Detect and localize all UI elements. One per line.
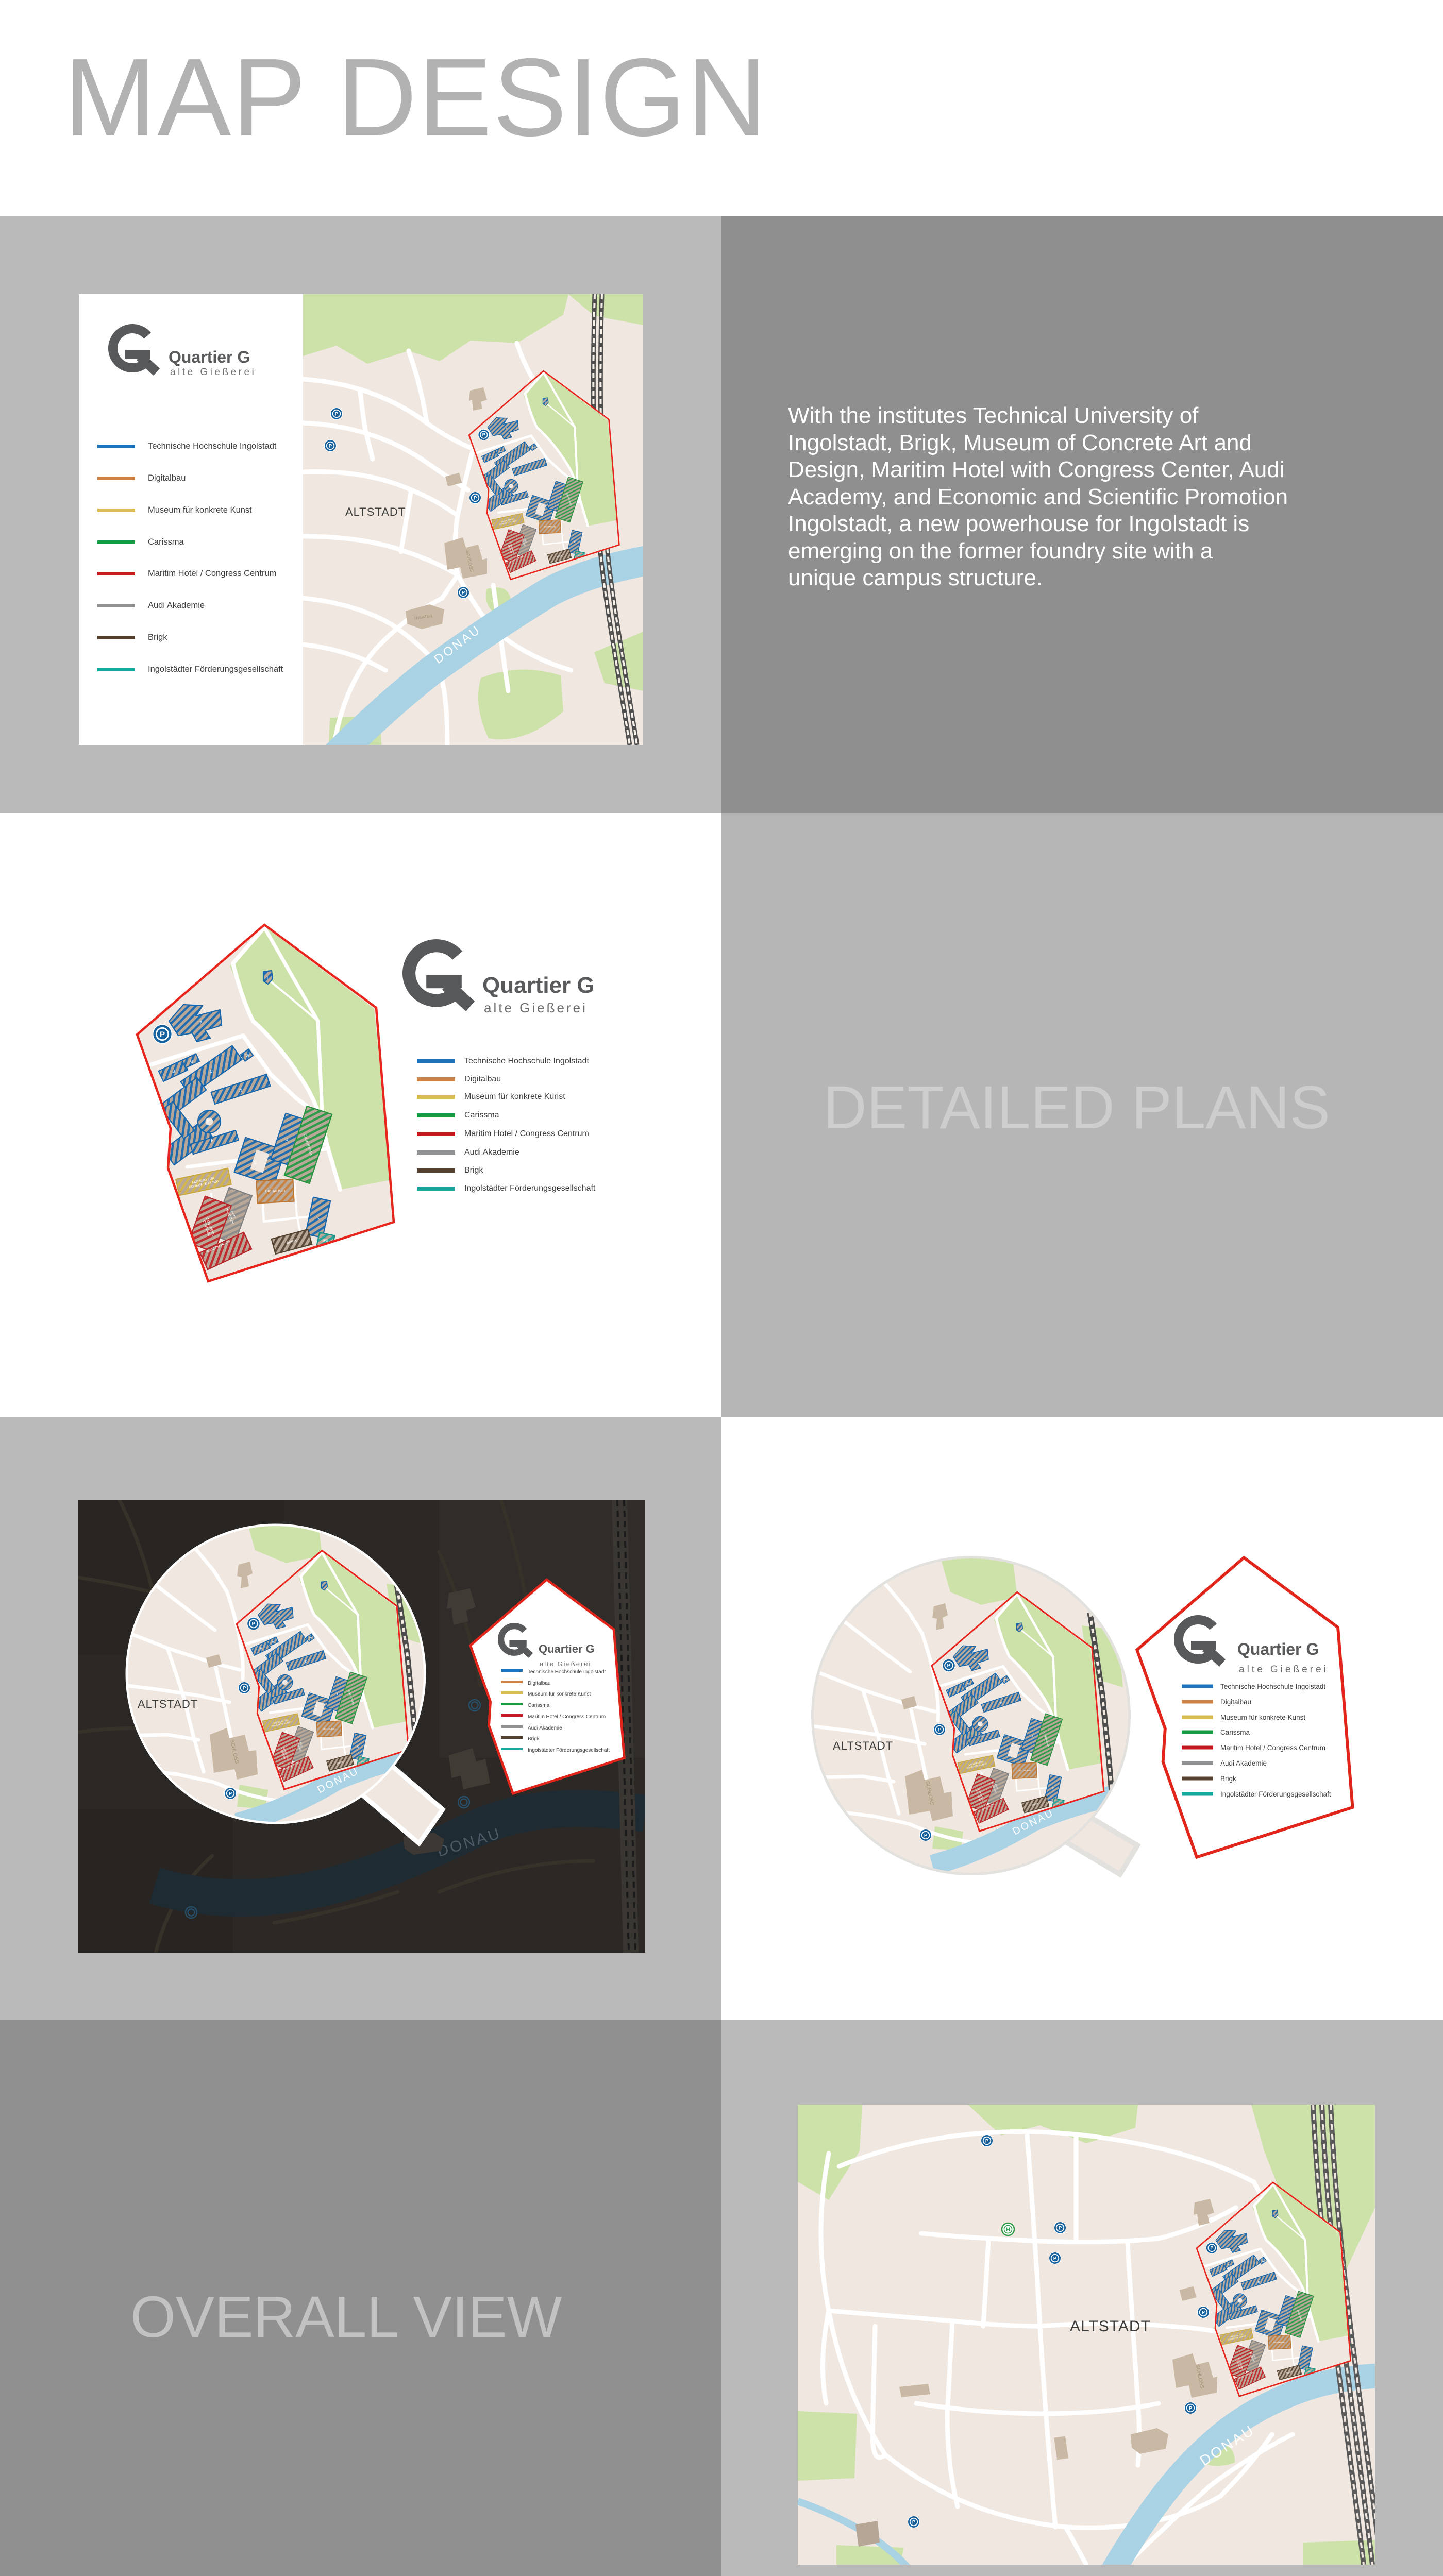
svg-text:ALTSTADT: ALTSTADT: [1070, 2318, 1151, 2335]
svg-text:ALTSTADT: ALTSTADT: [345, 505, 406, 518]
svg-text:Museum für konkrete Kunst: Museum für konkrete Kunst: [1220, 1714, 1305, 1721]
svg-text:Maritim Hotel / Congress Centr: Maritim Hotel / Congress Centrum: [528, 1714, 606, 1720]
svg-text:Ingolstädter Förderungsgesells: Ingolstädter Förderungsgesellschaft: [1220, 1790, 1331, 1798]
svg-text:alte Gießerei: alte Gießerei: [1239, 1664, 1329, 1675]
svg-text:Carissma: Carissma: [1220, 1728, 1250, 1736]
svg-text:Quartier G: Quartier G: [1237, 1640, 1319, 1658]
svg-text:Museum für konkrete Kunst: Museum für konkrete Kunst: [528, 1691, 591, 1697]
svg-text:H: H: [1006, 2227, 1010, 2233]
svg-text:Audi Akademie: Audi Akademie: [1220, 1759, 1267, 1767]
svg-text:Digitalbau: Digitalbau: [528, 1681, 550, 1686]
svg-text:Digitalbau: Digitalbau: [1220, 1698, 1251, 1706]
svg-text:Quartier G: Quartier G: [539, 1642, 595, 1655]
svg-text:Technische Hochschule Ingolsta: Technische Hochschule Ingolstadt: [528, 1669, 606, 1675]
svg-text:Audi Akademie: Audi Akademie: [528, 1725, 562, 1731]
svg-text:alte Gießerei: alte Gießerei: [540, 1660, 591, 1668]
svg-text:Maritim Hotel / Congress Centr: Maritim Hotel / Congress Centrum: [1220, 1744, 1325, 1752]
svg-text:Technische Hochschule Ingolsta: Technische Hochschule Ingolstadt: [1220, 1683, 1325, 1690]
svg-text:Brigk: Brigk: [528, 1736, 540, 1742]
svg-text:Brigk: Brigk: [1220, 1775, 1236, 1783]
svg-text:Carissma: Carissma: [528, 1703, 550, 1708]
svg-text:Ingolstädter Förderungsgesells: Ingolstädter Förderungsgesellschaft: [528, 1748, 610, 1753]
